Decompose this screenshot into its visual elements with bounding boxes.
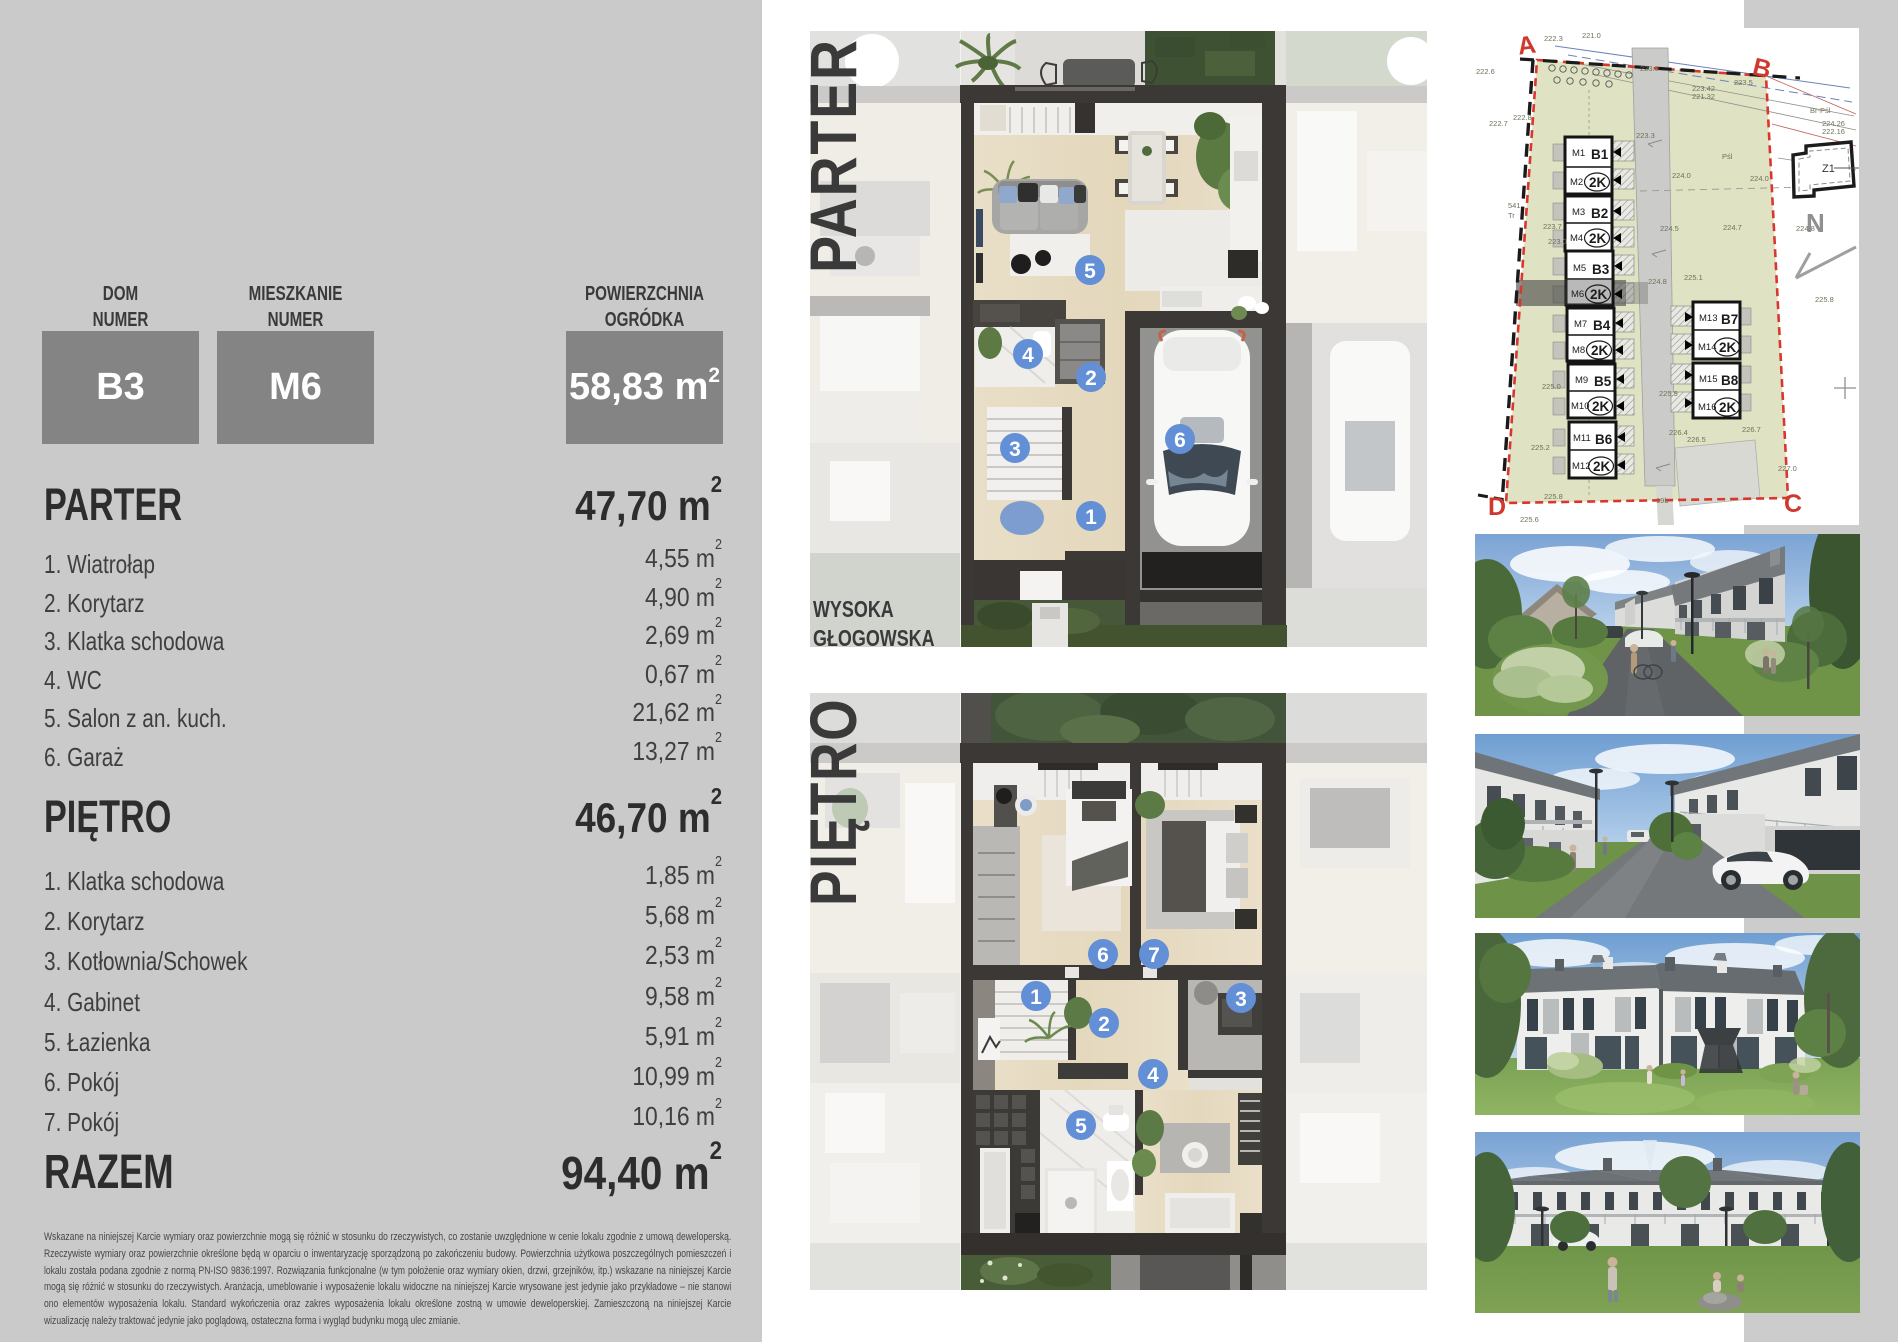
svg-text:224.8: 224.8: [1796, 224, 1815, 233]
svg-text:223.0: 223.0: [1640, 64, 1659, 73]
svg-text:B4: B4: [1593, 318, 1611, 333]
svg-text:M16: M16: [1698, 402, 1716, 413]
svg-text:B2: B2: [1591, 206, 1608, 221]
svg-text:M13: M13: [1699, 313, 1717, 324]
svg-text:B6: B6: [1595, 432, 1613, 447]
svg-text:6: 6: [1097, 944, 1109, 967]
svg-text:222.16: 222.16: [1822, 127, 1845, 136]
svg-text:Z1: Z1: [1822, 163, 1835, 175]
svg-text:B3: B3: [1592, 262, 1610, 277]
svg-text:224.0: 224.0: [1750, 174, 1769, 183]
svg-text:2K: 2K: [1719, 340, 1737, 355]
svg-text:222.3: 222.3: [1544, 34, 1563, 43]
svg-text:223.5: 223.5: [1734, 78, 1753, 87]
svg-text:Br-Pśl: Br-Pśl: [1810, 106, 1831, 115]
svg-text:225.9: 225.9: [1659, 389, 1678, 398]
svg-text:Tr: Tr: [1508, 211, 1515, 220]
svg-text:224.7: 224.7: [1723, 223, 1742, 232]
svg-text:224.5: 224.5: [1660, 224, 1679, 233]
svg-text:5: 5: [1084, 260, 1096, 283]
svg-text:2K: 2K: [1592, 399, 1610, 414]
svg-text:M15: M15: [1699, 374, 1717, 385]
svg-text:M12: M12: [1572, 461, 1590, 472]
svg-text:M14: M14: [1698, 342, 1716, 353]
svg-text:223.0: 223.0: [1548, 237, 1567, 246]
svg-text:M7: M7: [1574, 319, 1587, 330]
svg-text:B7: B7: [1721, 312, 1738, 327]
svg-text:M11: M11: [1573, 433, 1591, 444]
svg-text:B: B: [1750, 53, 1774, 85]
svg-text:M5: M5: [1573, 263, 1586, 274]
svg-text:2: 2: [1085, 367, 1097, 390]
svg-text:4: 4: [1147, 1064, 1159, 1087]
svg-text:B8: B8: [1721, 373, 1739, 388]
svg-text:3: 3: [1009, 438, 1021, 461]
svg-text:C: C: [1784, 490, 1802, 518]
svg-text:M1: M1: [1572, 148, 1585, 159]
svg-text:M8: M8: [1572, 345, 1585, 356]
svg-text:2K: 2K: [1589, 231, 1607, 246]
svg-text:6: 6: [1174, 429, 1186, 452]
svg-text:227.0: 227.0: [1778, 464, 1797, 473]
svg-text:M3: M3: [1572, 207, 1585, 218]
svg-text:19b: 19b: [1656, 496, 1669, 505]
svg-text:M10: M10: [1571, 401, 1589, 412]
svg-text:7: 7: [1148, 944, 1160, 967]
svg-text:Pśl: Pśl: [1722, 152, 1733, 161]
svg-text:B5: B5: [1594, 374, 1612, 389]
svg-text:226.7: 226.7: [1742, 425, 1761, 434]
svg-text:M6: M6: [1571, 289, 1584, 300]
svg-text:3: 3: [1235, 988, 1247, 1011]
svg-text:225.0: 225.0: [1542, 382, 1561, 391]
svg-text:2K: 2K: [1591, 343, 1609, 358]
svg-text:226.5: 226.5: [1687, 435, 1706, 444]
svg-text:M4: M4: [1570, 233, 1583, 244]
svg-text:2K: 2K: [1719, 400, 1737, 415]
svg-text:B1: B1: [1591, 147, 1609, 162]
svg-text:221.32: 221.32: [1692, 92, 1715, 101]
svg-text:225.2: 225.2: [1531, 443, 1550, 452]
svg-text:225.8: 225.8: [1544, 492, 1563, 501]
svg-text:225.8: 225.8: [1815, 295, 1834, 304]
svg-text:225.1: 225.1: [1684, 273, 1703, 282]
svg-text:1: 1: [1085, 506, 1097, 529]
svg-text:N: N: [1806, 208, 1825, 238]
svg-text:2: 2: [1098, 1013, 1110, 1036]
svg-text:2K: 2K: [1593, 459, 1611, 474]
svg-text:1: 1: [1030, 986, 1042, 1009]
svg-text:223.3: 223.3: [1636, 131, 1655, 140]
svg-text:225.6: 225.6: [1520, 515, 1539, 524]
svg-text:221.0: 221.0: [1582, 31, 1601, 40]
svg-text:222.7: 222.7: [1489, 119, 1508, 128]
svg-text:A: A: [1516, 30, 1538, 60]
svg-text:D: D: [1488, 493, 1506, 521]
svg-text:223.7: 223.7: [1543, 222, 1562, 231]
svg-text:2K: 2K: [1590, 287, 1608, 302]
svg-text:M2: M2: [1570, 177, 1583, 188]
svg-text:224.0: 224.0: [1672, 171, 1691, 180]
svg-text:222.8: 222.8: [1513, 113, 1532, 122]
svg-text:541: 541: [1508, 201, 1521, 210]
svg-text:224.8: 224.8: [1648, 277, 1667, 286]
svg-text:226.4: 226.4: [1669, 428, 1688, 437]
svg-text:2K: 2K: [1589, 175, 1607, 190]
svg-text:4: 4: [1022, 344, 1034, 367]
svg-text:222.6: 222.6: [1476, 67, 1495, 76]
svg-text:5: 5: [1075, 1115, 1087, 1138]
svg-text:M9: M9: [1575, 375, 1588, 386]
